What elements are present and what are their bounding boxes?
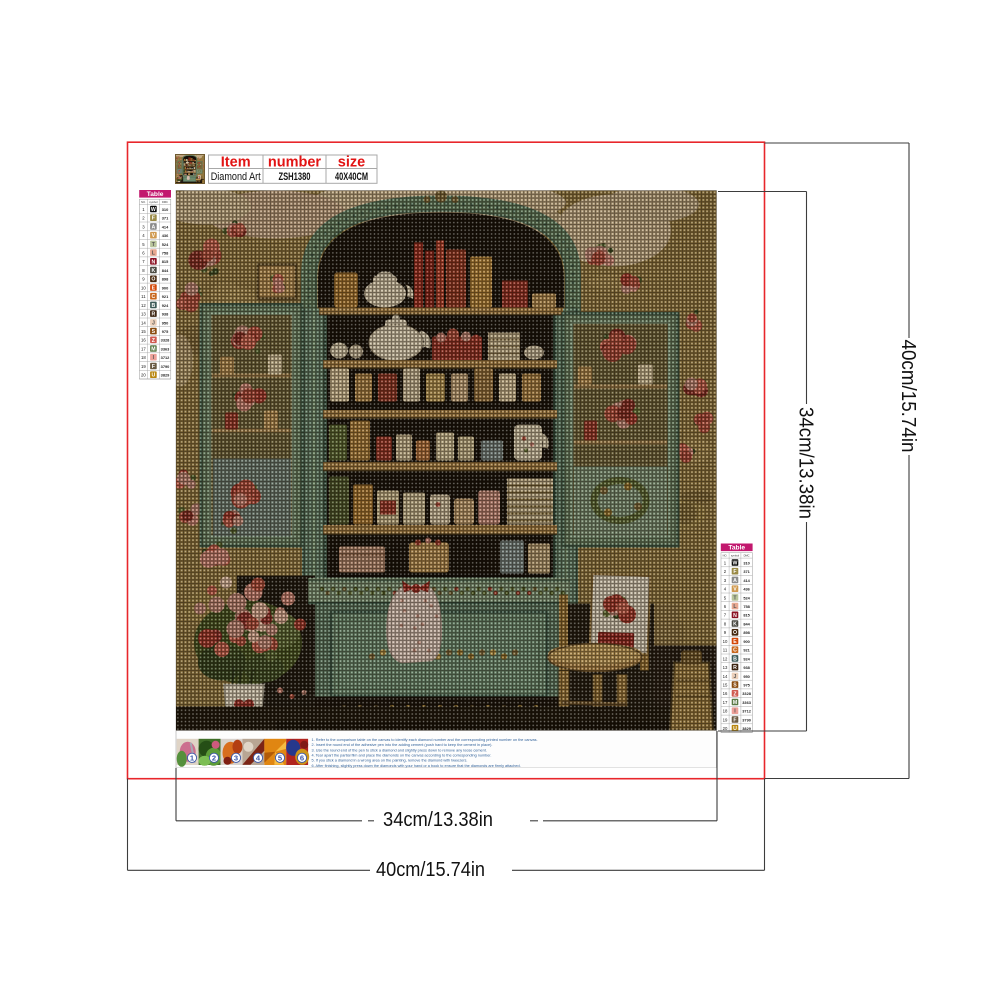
svg-text:924: 924: [162, 303, 169, 308]
svg-text:975: 975: [162, 329, 169, 334]
svg-text:310: 310: [743, 560, 750, 565]
svg-text:758: 758: [162, 251, 169, 256]
svg-text:F: F: [733, 569, 736, 575]
svg-text:11: 11: [141, 294, 146, 299]
svg-text:975: 975: [743, 683, 750, 688]
svg-text:6. After finishing, slightly p: 6. After finishing, slightly press down …: [312, 764, 521, 768]
svg-text:O: O: [151, 277, 155, 283]
svg-text:M: M: [733, 700, 737, 706]
svg-text:17: 17: [723, 700, 728, 705]
svg-text:NO.: NO.: [141, 200, 146, 204]
svg-text:3363: 3363: [742, 700, 751, 705]
svg-text:13: 13: [141, 312, 146, 317]
svg-text:symbol: symbol: [149, 200, 158, 204]
svg-text:12: 12: [141, 303, 146, 308]
svg-text:N: N: [733, 613, 737, 619]
svg-text:ZSH1380: ZSH1380: [279, 171, 311, 183]
svg-text:12: 12: [723, 656, 728, 661]
svg-text:U: U: [152, 373, 156, 379]
svg-text:5. If you stick a diamond in a: 5. If you stick a diamond in a wrong are…: [312, 759, 468, 763]
svg-text:16: 16: [723, 691, 728, 696]
svg-text:898: 898: [743, 630, 750, 635]
svg-text:J: J: [152, 320, 155, 326]
svg-text:14: 14: [723, 674, 728, 679]
svg-text:758: 758: [743, 604, 750, 609]
svg-text:V: V: [733, 587, 737, 593]
svg-text:F: F: [152, 364, 155, 370]
svg-text:15: 15: [723, 683, 728, 688]
svg-text:20: 20: [723, 726, 728, 731]
svg-text:17: 17: [141, 346, 146, 351]
svg-text:F: F: [733, 717, 736, 723]
svg-text:40X40CM: 40X40CM: [335, 171, 368, 183]
svg-text:3790: 3790: [161, 364, 170, 369]
svg-text:2: 2: [212, 754, 216, 763]
svg-text:524: 524: [743, 595, 750, 600]
svg-text:371: 371: [743, 569, 750, 574]
svg-text:436: 436: [162, 233, 169, 238]
svg-text:K: K: [152, 268, 156, 274]
svg-text:524: 524: [162, 242, 169, 247]
svg-text:NO.: NO.: [723, 554, 728, 558]
svg-text:B: B: [152, 303, 156, 309]
svg-text:921: 921: [162, 294, 169, 299]
svg-text:3: 3: [234, 754, 238, 763]
svg-text:950: 950: [162, 320, 169, 325]
svg-text:34cm/13.38in: 34cm/13.38in: [795, 407, 818, 519]
svg-text:N: N: [152, 259, 156, 265]
svg-text:3328: 3328: [742, 691, 751, 696]
svg-text:18: 18: [723, 709, 728, 714]
svg-text:R: R: [733, 665, 737, 671]
svg-text:A: A: [733, 578, 737, 584]
svg-text:O: O: [733, 630, 737, 636]
svg-text:size: size: [338, 155, 365, 171]
svg-text:436: 436: [743, 587, 750, 592]
svg-text:J: J: [734, 674, 737, 680]
svg-text:M: M: [151, 347, 155, 353]
svg-text:13: 13: [723, 665, 728, 670]
svg-text:3790: 3790: [742, 717, 751, 722]
svg-text:938: 938: [162, 312, 169, 317]
svg-text:938: 938: [743, 665, 750, 670]
svg-text:4. Tear apart the partial film: 4. Tear apart the partial film and place…: [312, 753, 492, 757]
svg-text:16: 16: [141, 338, 146, 343]
svg-text:921: 921: [743, 648, 750, 653]
svg-text:B: B: [733, 656, 737, 662]
svg-text:Table: Table: [728, 545, 745, 552]
svg-text:34cm/13.38in: 34cm/13.38in: [383, 808, 493, 831]
svg-text:3328: 3328: [161, 338, 170, 343]
svg-text:15: 15: [141, 329, 146, 334]
svg-text:371: 371: [162, 216, 169, 221]
svg-text:Table: Table: [147, 191, 164, 198]
svg-text:40cm/15.74in: 40cm/15.74in: [897, 340, 920, 453]
svg-text:900: 900: [162, 285, 169, 290]
svg-text:10: 10: [723, 639, 728, 644]
svg-text:18: 18: [141, 355, 146, 360]
svg-text:844: 844: [162, 268, 169, 273]
svg-text:symbol: symbol: [731, 554, 740, 558]
svg-text:W: W: [733, 560, 738, 566]
svg-text:815: 815: [743, 613, 750, 618]
svg-text:W: W: [151, 207, 156, 213]
svg-text:3829: 3829: [161, 373, 170, 378]
svg-text:C: C: [733, 648, 737, 654]
svg-text:C: C: [152, 294, 156, 300]
svg-text:DMC: DMC: [162, 200, 168, 204]
svg-text:DMC: DMC: [744, 554, 750, 558]
svg-text:19: 19: [141, 364, 146, 369]
svg-text:3363: 3363: [161, 346, 170, 351]
svg-text:898: 898: [162, 277, 169, 282]
svg-text:3712: 3712: [742, 709, 751, 714]
svg-text:1. Refer to the comparison tab: 1. Refer to the comparison table on the …: [312, 738, 538, 742]
svg-text:3712: 3712: [161, 355, 170, 360]
svg-text:40cm/15.74in: 40cm/15.74in: [376, 858, 485, 881]
svg-text:K: K: [733, 622, 737, 628]
svg-text:19: 19: [723, 717, 728, 722]
svg-text:414: 414: [743, 578, 750, 583]
svg-text:S: S: [733, 683, 737, 689]
svg-text:E: E: [733, 639, 737, 645]
svg-text:R: R: [152, 312, 156, 318]
svg-text:S: S: [152, 329, 156, 335]
svg-text:3829: 3829: [742, 726, 751, 731]
svg-text:844: 844: [743, 621, 750, 626]
svg-text:950: 950: [743, 674, 750, 679]
svg-text:815: 815: [162, 259, 169, 264]
svg-text:2. Insert the round end of the: 2. Insert the round end of the adhesive …: [312, 743, 493, 747]
svg-text:V: V: [152, 233, 156, 239]
svg-text:900: 900: [743, 639, 750, 644]
svg-text:14: 14: [141, 320, 146, 325]
svg-text:A: A: [152, 224, 156, 230]
svg-text:924: 924: [743, 656, 750, 661]
svg-text:3. Use the round end of the pe: 3. Use the round end of the pen to stick…: [312, 748, 487, 752]
svg-text:11: 11: [723, 648, 728, 653]
svg-text:Diamond Art: Diamond Art: [211, 171, 261, 183]
svg-text:414: 414: [162, 224, 169, 229]
svg-text:310: 310: [162, 207, 169, 212]
svg-text:number: number: [268, 155, 322, 171]
svg-text:20: 20: [141, 373, 146, 378]
svg-text:F: F: [152, 216, 155, 222]
svg-text:10: 10: [141, 285, 146, 290]
svg-text:6: 6: [300, 754, 304, 763]
svg-text:Item: Item: [221, 155, 251, 171]
svg-text:E: E: [152, 285, 156, 291]
